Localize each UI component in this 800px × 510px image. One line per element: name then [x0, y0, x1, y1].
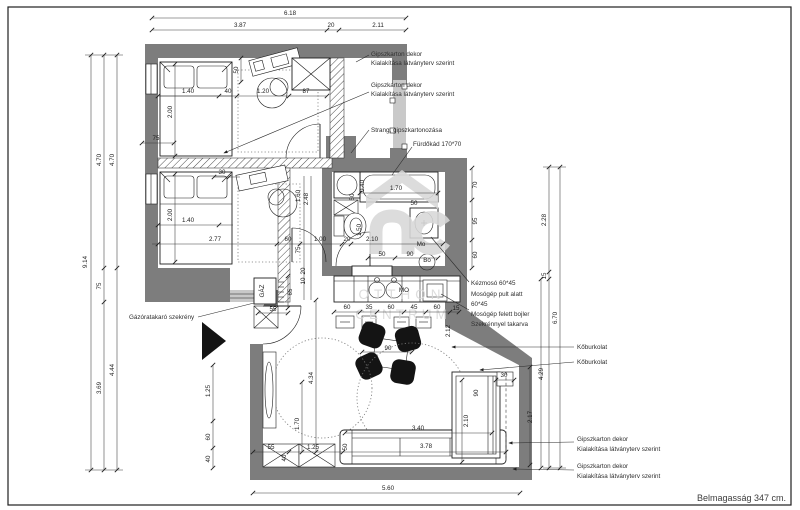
label-koburkolat2: Kőburkolat [577, 359, 607, 366]
dim-label: 1.50 [356, 223, 363, 236]
dim-label: 4.70 [109, 153, 116, 166]
dim-label: 1.40 [182, 217, 195, 224]
dim-label: 2.48 [303, 192, 310, 205]
dim-label: 5.60 [382, 485, 395, 492]
label-gips-top1-l2: Kialakítása látványterv szerint [371, 60, 455, 67]
dim-label: 1.60 [295, 189, 302, 202]
dim-label: 3.78 [420, 443, 433, 450]
dim-label: 0.40 [359, 179, 366, 192]
dim-label: 1.25 [307, 444, 320, 451]
entrance-arrow [202, 322, 226, 360]
dim-label: 50 [379, 251, 386, 258]
dim-label: 2.00 [167, 105, 174, 118]
dining-set [353, 320, 423, 386]
dim-label: 4.34 [308, 371, 315, 384]
carpet-circle-1 [272, 338, 372, 438]
washing-machine [334, 172, 360, 215]
dim-label: 3.87 [234, 22, 247, 29]
dim-label: 1.70 [294, 417, 301, 430]
dim-label: 30 [219, 169, 226, 176]
dim-label: GÁZ [259, 284, 266, 297]
label-kezmoso: Kézmosó 60*45 [471, 280, 516, 287]
dim-label: 90 [473, 389, 480, 396]
dim-label: 20 [300, 267, 307, 274]
window-left-2 [146, 174, 157, 204]
dim-label: 1.20 [257, 88, 270, 95]
dim-label: 50 [233, 66, 240, 73]
dim-label: 15 [453, 305, 460, 312]
label-mosogep1: Mosógép pult alatt [471, 291, 523, 298]
dim-label: 20 [328, 22, 335, 29]
dim-label: 40 [205, 455, 212, 462]
dim-label: 35 [366, 304, 373, 311]
dim-label: 45 [411, 304, 418, 311]
dim-label: 2.12 [445, 324, 452, 337]
label-gips-top2: Gipszkarton dekor [371, 82, 422, 89]
floor-plan-drawing: OTTHON CENTRUM [0, 0, 800, 510]
dim-label: 65 [287, 288, 294, 295]
label-strang: Strang, gipszkartonozása [371, 127, 443, 134]
dim-label: 9.14 [82, 255, 89, 268]
dim-label: 1.40 [182, 88, 195, 95]
dim-label: 60 [205, 433, 212, 440]
dim-label: Bo [423, 257, 431, 264]
dim-label: 6.70 [552, 311, 559, 324]
dim-label: 4.70 [96, 153, 103, 166]
label-mosogep1-l2: 60*45 [471, 301, 488, 308]
window-left-1 [146, 64, 157, 94]
dim-label: MO [399, 287, 409, 294]
dim-label: 2.00 [167, 208, 174, 221]
footer-note: Belmagasság 347 cm. [697, 493, 786, 503]
dim-label: 75 [295, 246, 302, 253]
dim-label: 50 [349, 193, 356, 200]
dim-label: 2.28 [541, 213, 548, 226]
dim-label: 2.77 [209, 236, 222, 243]
label-gips-top1: Gipszkarton dekor [371, 51, 422, 58]
dim-label: 75 [153, 135, 160, 142]
label-mosogep2: Mosógép felett bojler [471, 311, 529, 318]
dim-label: 15 [541, 272, 548, 279]
dim-label: Mo [417, 241, 426, 248]
dim-label: 3.40 [412, 425, 425, 432]
dim-label: 1.25 [205, 384, 212, 397]
dim-label: 1.70 [390, 185, 403, 192]
dim-label: 4.29 [538, 367, 545, 380]
dining-chair [389, 358, 417, 386]
dim-label: 30 [501, 372, 508, 379]
partition-bedrooms [158, 158, 332, 168]
dim-label: 2.10 [463, 414, 470, 427]
dim-label: 2.10 [366, 236, 379, 243]
dim-label: 40 [225, 88, 232, 95]
dim-label: 2.11 [372, 22, 384, 29]
dim-label: 20 [344, 236, 351, 243]
dim-label: 95 [472, 217, 479, 224]
dim-label: 6.18 [284, 10, 297, 17]
label-gips-bot1: Gipszkarton dekor [577, 436, 628, 443]
floor-plan-page: OTTHON CENTRUM [0, 0, 800, 510]
dim-label: 60 [434, 304, 441, 311]
label-mosogep2-l2: Szekrénnyel takarva [471, 321, 529, 328]
label-gips-bot1-l2: Kialakítása látványterv szerint [577, 446, 661, 453]
wardrobe-bedroom1 [292, 58, 330, 90]
partition-bedroom1-right [330, 58, 344, 158]
dim-label: 10 [300, 277, 307, 284]
dim-label: 87 [303, 88, 310, 95]
dim-label: 60 [344, 304, 351, 311]
dim-label: 2.17 [527, 410, 534, 423]
dim-label: 3.69 [96, 381, 103, 394]
dim-label: 75 [96, 282, 103, 289]
dim-label: 60 [472, 251, 479, 258]
label-furdokad: Fürdőkád 170*70 [413, 141, 462, 148]
dim-label: 90 [385, 345, 392, 352]
rug-bedroom2 [238, 184, 300, 262]
dim-label: 50 [411, 200, 418, 207]
dim-label: 60 [388, 304, 395, 311]
dim-label: 55 [268, 444, 275, 451]
label-koburkolat1: Kőburkolat [577, 344, 607, 351]
door-bedroom2 [292, 228, 326, 262]
label-gips-bot2-l2: Kialakítása látványterv szerint [577, 473, 661, 480]
door-bedroom1 [286, 124, 320, 158]
dim-label: 60 [285, 236, 292, 243]
dim-label: 70 [472, 181, 479, 188]
label-gips-bot2: Gipszkarton dekor [577, 463, 628, 470]
dim-label: 1.00 [314, 236, 327, 243]
tv-console [263, 352, 276, 428]
label-gips-top2-l2: Kialakítása látványterv szerint [371, 91, 455, 98]
dim-label: 4.44 [109, 363, 116, 376]
dim-label: 90 [407, 251, 414, 258]
label-gazora: Gázóratakaró szekrény [129, 314, 195, 321]
dim-label: 55 [270, 306, 277, 313]
dim-label: 40 [281, 454, 288, 461]
dim-label: 50 [342, 443, 349, 450]
